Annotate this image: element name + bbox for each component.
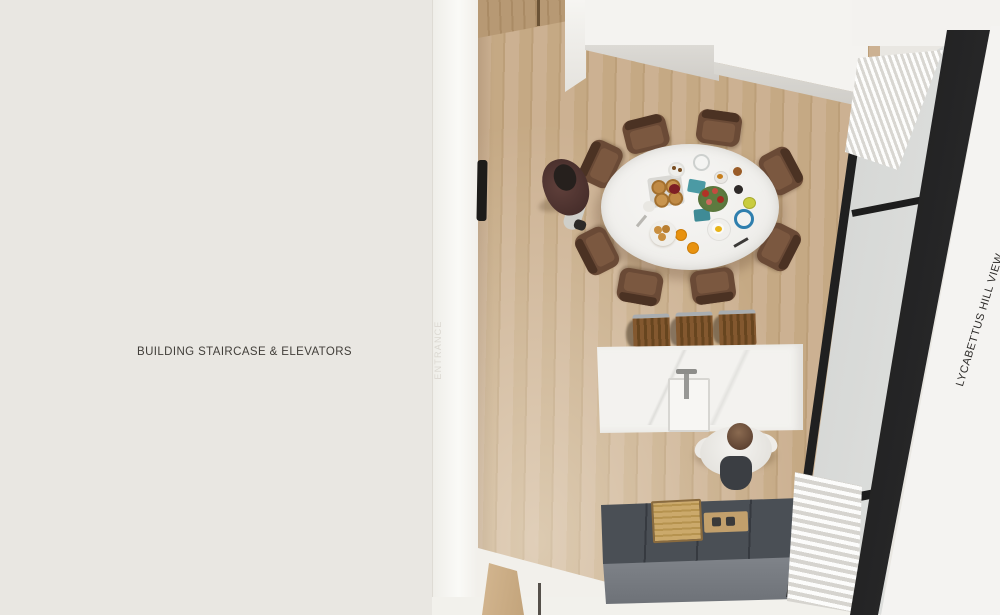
floor-plan-render: BUILDING STAIRCASE & ELEVATORS ENTRANCE … (0, 0, 1000, 615)
coffee (717, 174, 723, 179)
croissant-plate (650, 221, 676, 246)
door-handle (476, 160, 487, 221)
bar-stool (675, 311, 713, 348)
orange-juice-glass (675, 229, 687, 241)
cookie-plate (668, 162, 685, 178)
flower (706, 199, 712, 205)
dark-bowl (734, 185, 743, 194)
faucet-spout (676, 369, 697, 374)
croissant (658, 233, 666, 241)
orange-juice-glass (687, 242, 699, 254)
cookie (678, 168, 682, 172)
flower (712, 188, 718, 194)
dining-chair (615, 266, 664, 307)
jam-bowl (669, 184, 680, 194)
cookie (672, 166, 676, 170)
dining-chair (689, 266, 737, 306)
cooktop-burner (712, 517, 721, 526)
water-glass (693, 154, 710, 171)
wall-pilaster (565, 0, 586, 92)
egg-plate (707, 218, 731, 241)
bar-stool (632, 313, 670, 350)
cutting-board (651, 499, 703, 544)
flower-centerpiece (698, 186, 728, 212)
threshold-edge (538, 583, 541, 615)
entrance-door (432, 0, 479, 615)
flower (702, 190, 709, 197)
faucet (684, 372, 689, 399)
egg-yolk (715, 226, 722, 232)
panel-groove (537, 0, 540, 26)
green-cup (743, 197, 756, 209)
butter-dish (643, 201, 655, 212)
muffin (733, 167, 742, 176)
island-sink (668, 378, 710, 432)
croissant (662, 225, 670, 233)
cooktop-burner (726, 517, 735, 526)
flower (717, 196, 724, 203)
cooktop (704, 511, 749, 533)
blue-cup (734, 209, 754, 229)
entrance-label: ENTRANCE (433, 310, 443, 390)
top-wall-left (585, 0, 715, 47)
dining-chair (695, 108, 743, 148)
building-area-label: BUILDING STAIRCASE & ELEVATORS (137, 346, 352, 358)
bar-stool (718, 309, 756, 346)
